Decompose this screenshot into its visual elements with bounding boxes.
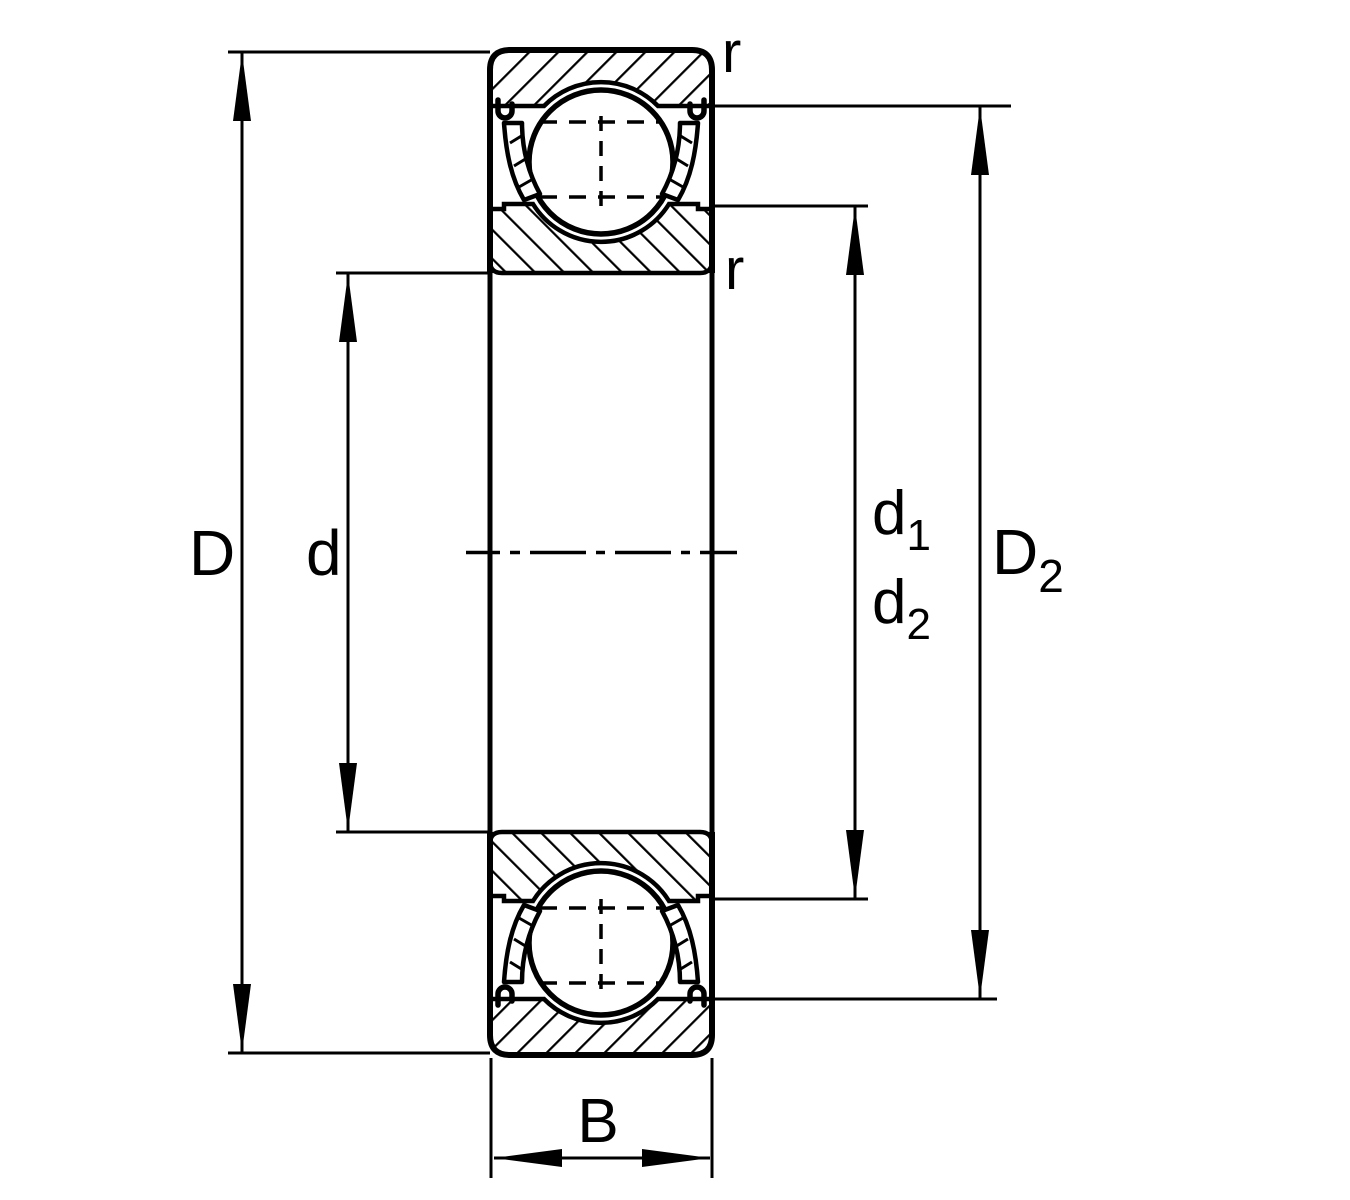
arrowhead-left [494, 1149, 562, 1167]
dimension-B: B [491, 1058, 712, 1178]
label-outer-diameter: D [189, 517, 235, 589]
arrowhead-down [233, 984, 251, 1052]
arrowhead-up [971, 107, 989, 175]
dimension-D2: D2 [712, 106, 1064, 999]
arrowhead-up [846, 207, 864, 275]
label-outer-recess-diameter: D2 [992, 516, 1064, 602]
label-inner-shoulder-diameter: d1 [872, 479, 931, 560]
arrowhead-up [233, 53, 251, 121]
label-inner-recess-diameter: d2 [872, 568, 931, 649]
bearing-upper-section [490, 50, 712, 273]
dimension-d: d [306, 273, 490, 832]
bearing-dimension-drawing: D d d1 d2 D2 B r r [0, 0, 1350, 1200]
arrowhead-down [846, 830, 864, 898]
label-chamfer-radius-top: r [722, 20, 741, 85]
arrowhead-up [339, 274, 357, 342]
label-bore-diameter: d [306, 517, 342, 589]
lower-ball [529, 871, 673, 1015]
bearing-diagram-svg: D d d1 d2 D2 B r r [0, 0, 1350, 1200]
bearing-lower-section [490, 832, 712, 1055]
label-chamfer-radius-inner: r [725, 237, 744, 302]
arrowhead-down [971, 930, 989, 998]
label-width: B [577, 1087, 618, 1156]
upper-ball [529, 90, 673, 234]
dimension-d1-d2: d1 d2 [712, 206, 931, 899]
arrowhead-right [642, 1149, 710, 1167]
arrowhead-down [339, 763, 357, 831]
